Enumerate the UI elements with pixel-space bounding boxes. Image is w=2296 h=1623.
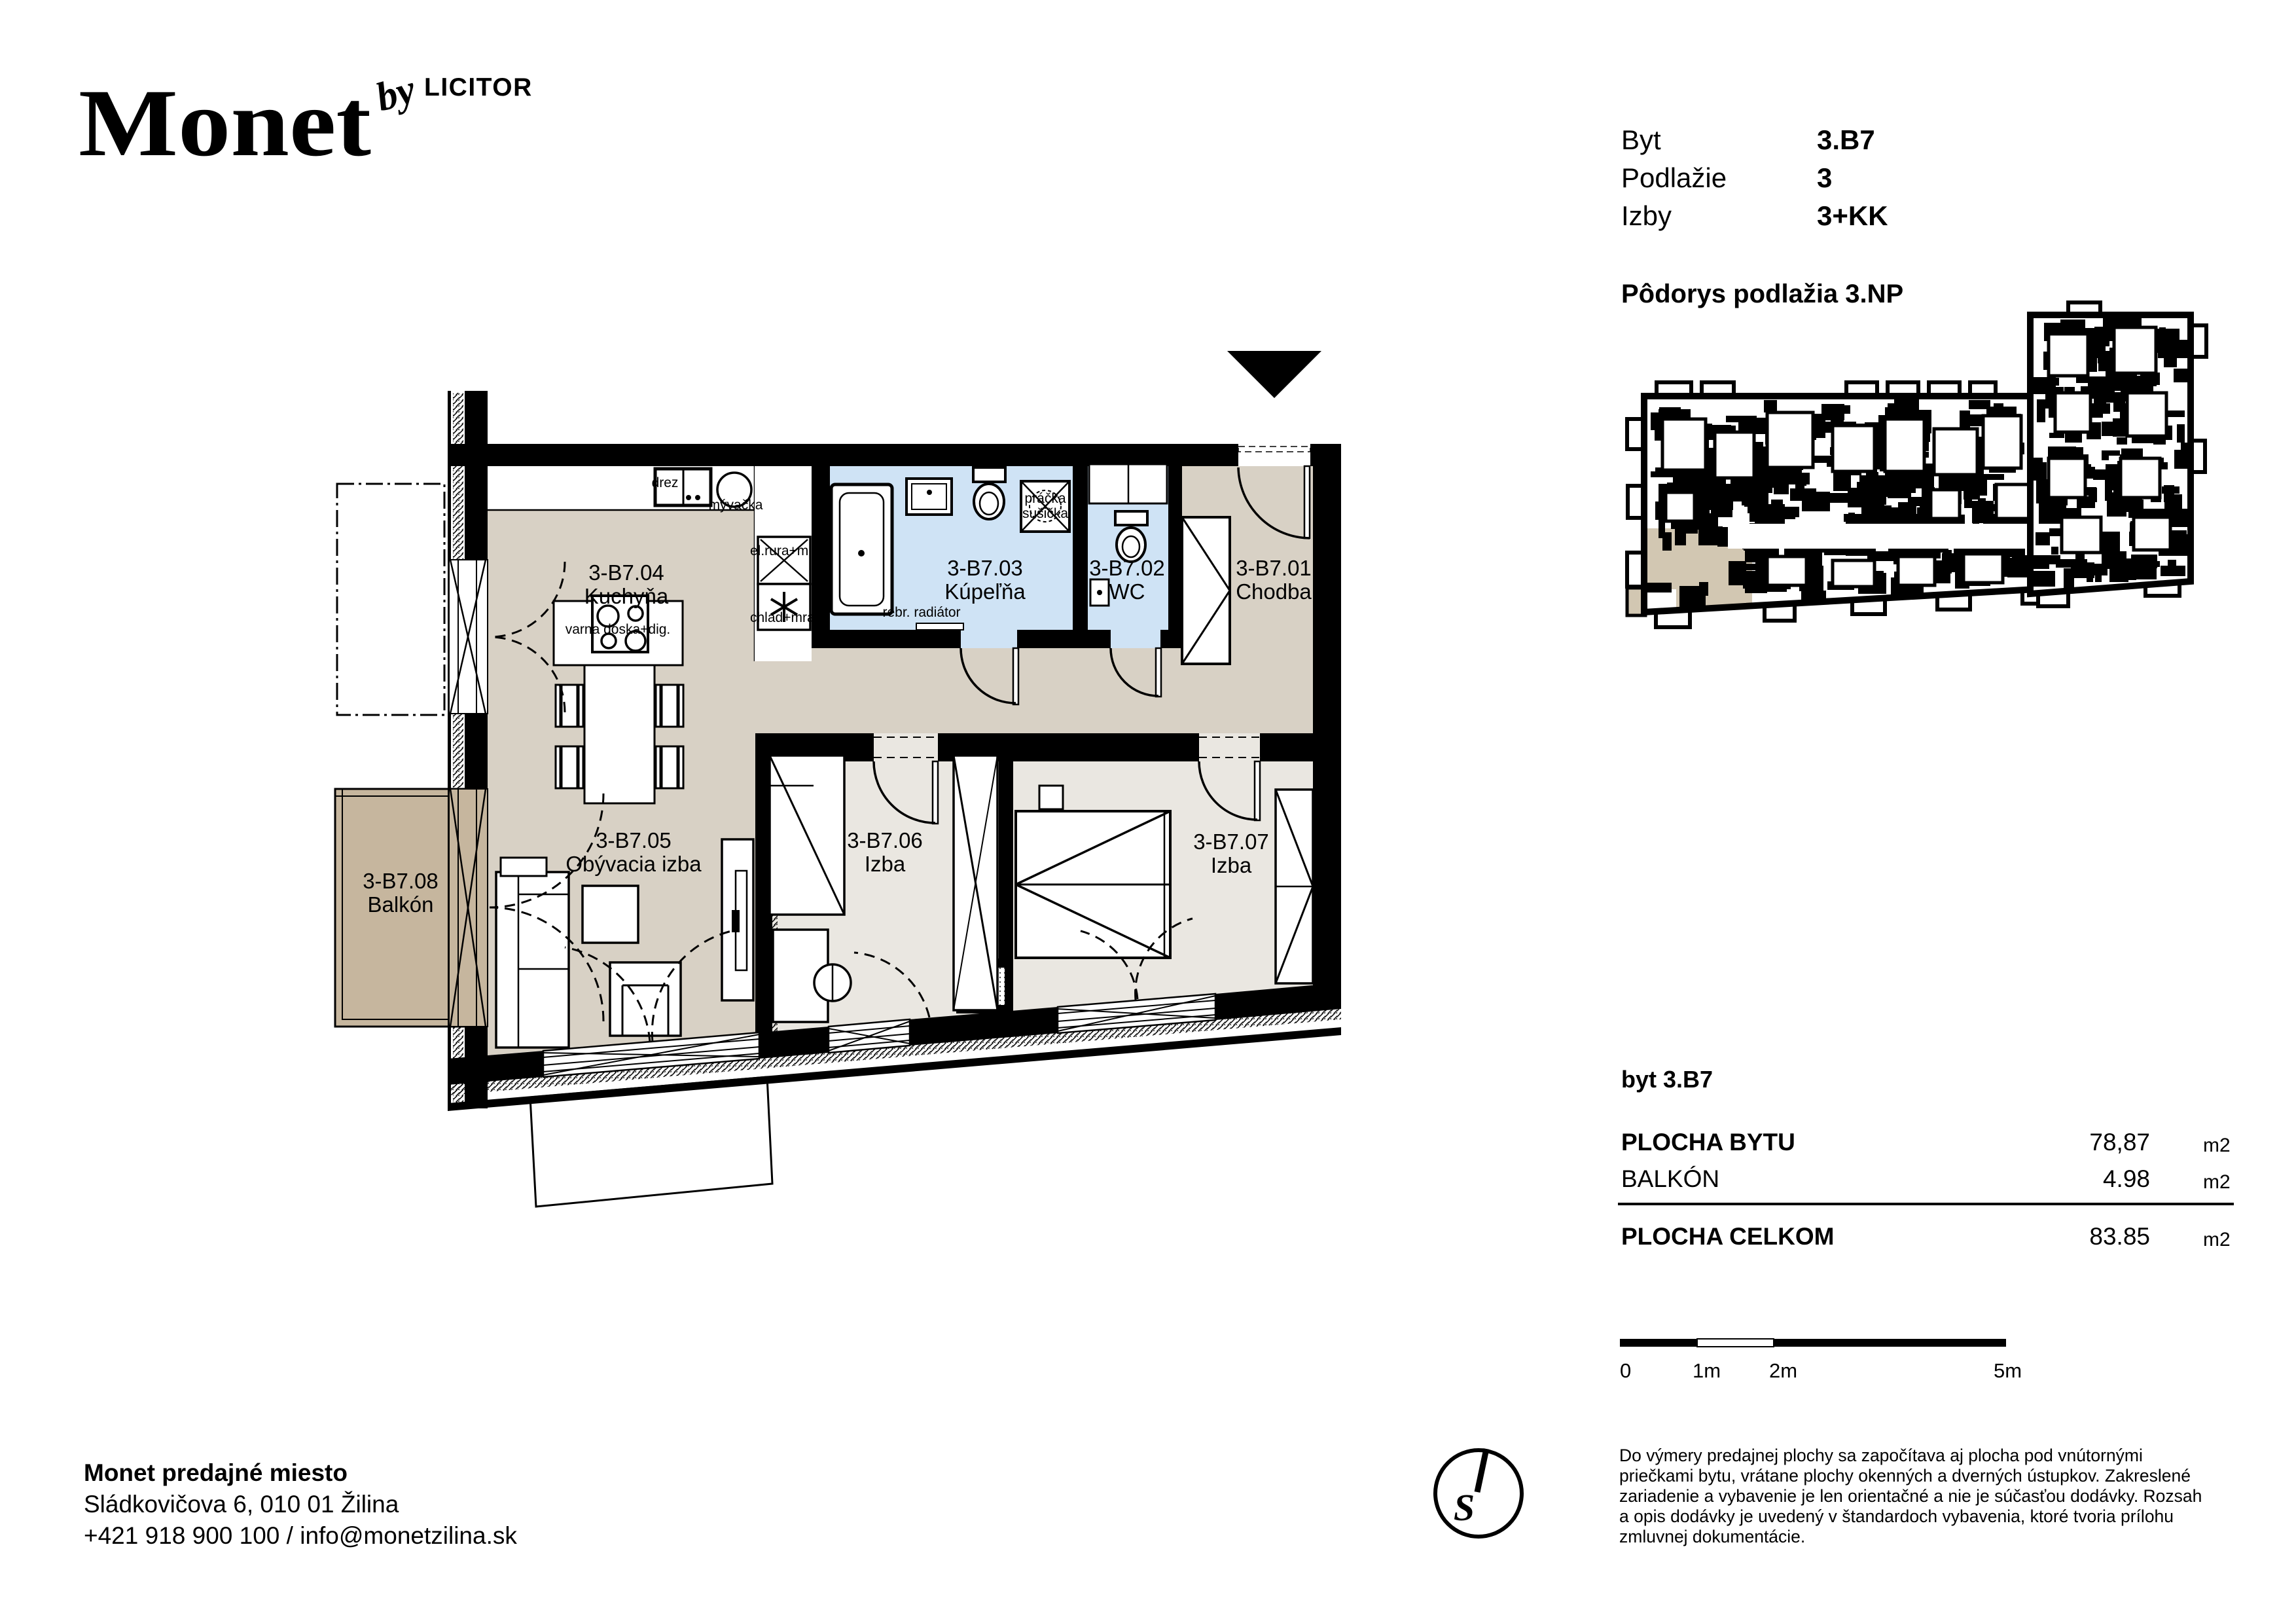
svg-text:3-B7.03: 3-B7.03	[947, 556, 1023, 580]
svg-text:byt 3.B7: byt 3.B7	[1621, 1066, 1713, 1093]
svg-text:m2: m2	[2203, 1171, 2231, 1193]
svg-text:rebr. radiátor: rebr. radiátor	[882, 605, 960, 620]
svg-text:Kuchyňa: Kuchyňa	[584, 584, 669, 608]
svg-text:práčka: práčka	[1024, 491, 1066, 506]
svg-text:3-B7.02: 3-B7.02	[1089, 556, 1165, 580]
svg-text:Sládkovičova 6, 010 01 Žilina: Sládkovičova 6, 010 01 Žilina	[84, 1491, 399, 1518]
svg-text:sušička: sušička	[1022, 506, 1068, 521]
svg-text:5m: 5m	[1994, 1359, 2022, 1382]
svg-text:3-B7.01: 3-B7.01	[1236, 556, 1312, 580]
svg-text:1m: 1m	[1693, 1359, 1721, 1382]
svg-text:Monet predajné miesto: Monet predajné miesto	[84, 1459, 348, 1486]
svg-text:+421 918 900 100 / info@monetz: +421 918 900 100 / info@monetzilina.sk	[84, 1522, 517, 1549]
svg-text:3-B7.04: 3-B7.04	[588, 560, 664, 585]
svg-text:a opis dodávky je uvedený v št: a opis dodávky je uvedený v štandardoch …	[1619, 1506, 2174, 1526]
svg-text:LICITOR: LICITOR	[424, 73, 533, 101]
svg-text:Obývacia izba: Obývacia izba	[565, 852, 702, 876]
svg-text:m2: m2	[2203, 1229, 2231, 1250]
svg-text:3: 3	[1817, 162, 1832, 193]
svg-text:Izba: Izba	[1211, 853, 1252, 877]
svg-text:Byt: Byt	[1621, 124, 1661, 155]
svg-text:priečkami bytu, vrátane plochy: priečkami bytu, vrátane plochy okenných …	[1619, 1466, 2191, 1486]
svg-text:BALKÓN: BALKÓN	[1621, 1165, 1719, 1192]
svg-text:3-B7.07: 3-B7.07	[1193, 830, 1269, 854]
svg-text:Kúpeľňa: Kúpeľňa	[944, 579, 1026, 604]
svg-text:Izba: Izba	[865, 852, 906, 876]
svg-text:3+KK: 3+KK	[1817, 200, 1888, 231]
svg-text:WC: WC	[1109, 579, 1145, 604]
svg-text:el.rura+mik....: el.rura+mik....	[750, 543, 834, 558]
svg-text:3-B7.06: 3-B7.06	[847, 828, 923, 852]
svg-text:PLOCHA BYTU: PLOCHA BYTU	[1621, 1129, 1795, 1156]
svg-text:m2: m2	[2203, 1135, 2231, 1156]
svg-text:drez: drez	[652, 475, 679, 490]
svg-text:83.85: 83.85	[2089, 1223, 2150, 1250]
svg-text:zariadenie a vybavenie je len: zariadenie a vybavenie je len orientačné…	[1619, 1486, 2202, 1506]
svg-text:by: by	[371, 67, 420, 120]
svg-text:Monet: Monet	[79, 69, 371, 176]
svg-text:78,87: 78,87	[2089, 1129, 2150, 1156]
svg-text:Podlažie: Podlažie	[1621, 162, 1727, 193]
svg-text:S: S	[1454, 1486, 1475, 1529]
svg-text:4.98: 4.98	[2103, 1165, 2150, 1192]
svg-text:Pôdorys podlažia 3.NP: Pôdorys podlažia 3.NP	[1621, 280, 1903, 308]
svg-text:3-B7.08: 3-B7.08	[363, 869, 439, 893]
svg-text:0: 0	[1620, 1359, 1631, 1382]
svg-text:3-B7.05: 3-B7.05	[596, 828, 672, 852]
svg-text:3.B7: 3.B7	[1817, 124, 1875, 155]
svg-text:varna doska+dig.: varna doska+dig.	[565, 622, 671, 637]
svg-text:Balkón: Balkón	[368, 892, 434, 917]
svg-text:Chodba: Chodba	[1236, 579, 1312, 604]
svg-text:Do výmery predajnej plochy sa: Do výmery predajnej plochy sa započítava…	[1619, 1446, 2143, 1465]
svg-text:PLOCHA CELKOM: PLOCHA CELKOM	[1621, 1223, 1834, 1250]
svg-text:2m: 2m	[1769, 1359, 1797, 1382]
svg-text:mývačka: mývačka	[709, 498, 763, 513]
svg-text:zmluvnej dokumentácie.: zmluvnej dokumentácie.	[1619, 1527, 1805, 1546]
svg-text:chlad+mra: chlad+mra	[750, 610, 815, 625]
svg-text:Izby: Izby	[1621, 200, 1672, 231]
